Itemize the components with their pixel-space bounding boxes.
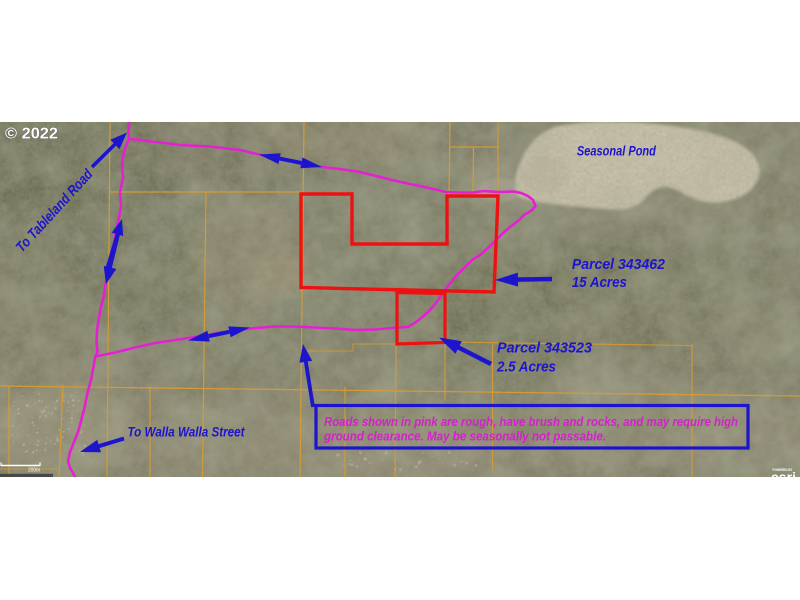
svg-text:© 2022: © 2022 [5, 126, 58, 143]
svg-text:15 Acres: 15 Acres [572, 275, 627, 291]
svg-text:Roads shown in pink are rough,: Roads shown in pink are rough, have brus… [324, 414, 738, 429]
svg-text:To Walla Walla Street: To Walla Walla Street [128, 425, 245, 440]
svg-text:2.5 Acres: 2.5 Acres [496, 359, 556, 375]
svg-text:Seasonal Pond: Seasonal Pond [577, 144, 657, 159]
svg-text:Parcel 343462: Parcel 343462 [572, 257, 665, 273]
svg-text:Parcel 343523: Parcel 343523 [497, 341, 592, 357]
svg-text:200m: 200m [28, 468, 40, 474]
svg-text:ground clearance. May be seaso: ground clearance. May be seasonally not … [323, 429, 606, 444]
